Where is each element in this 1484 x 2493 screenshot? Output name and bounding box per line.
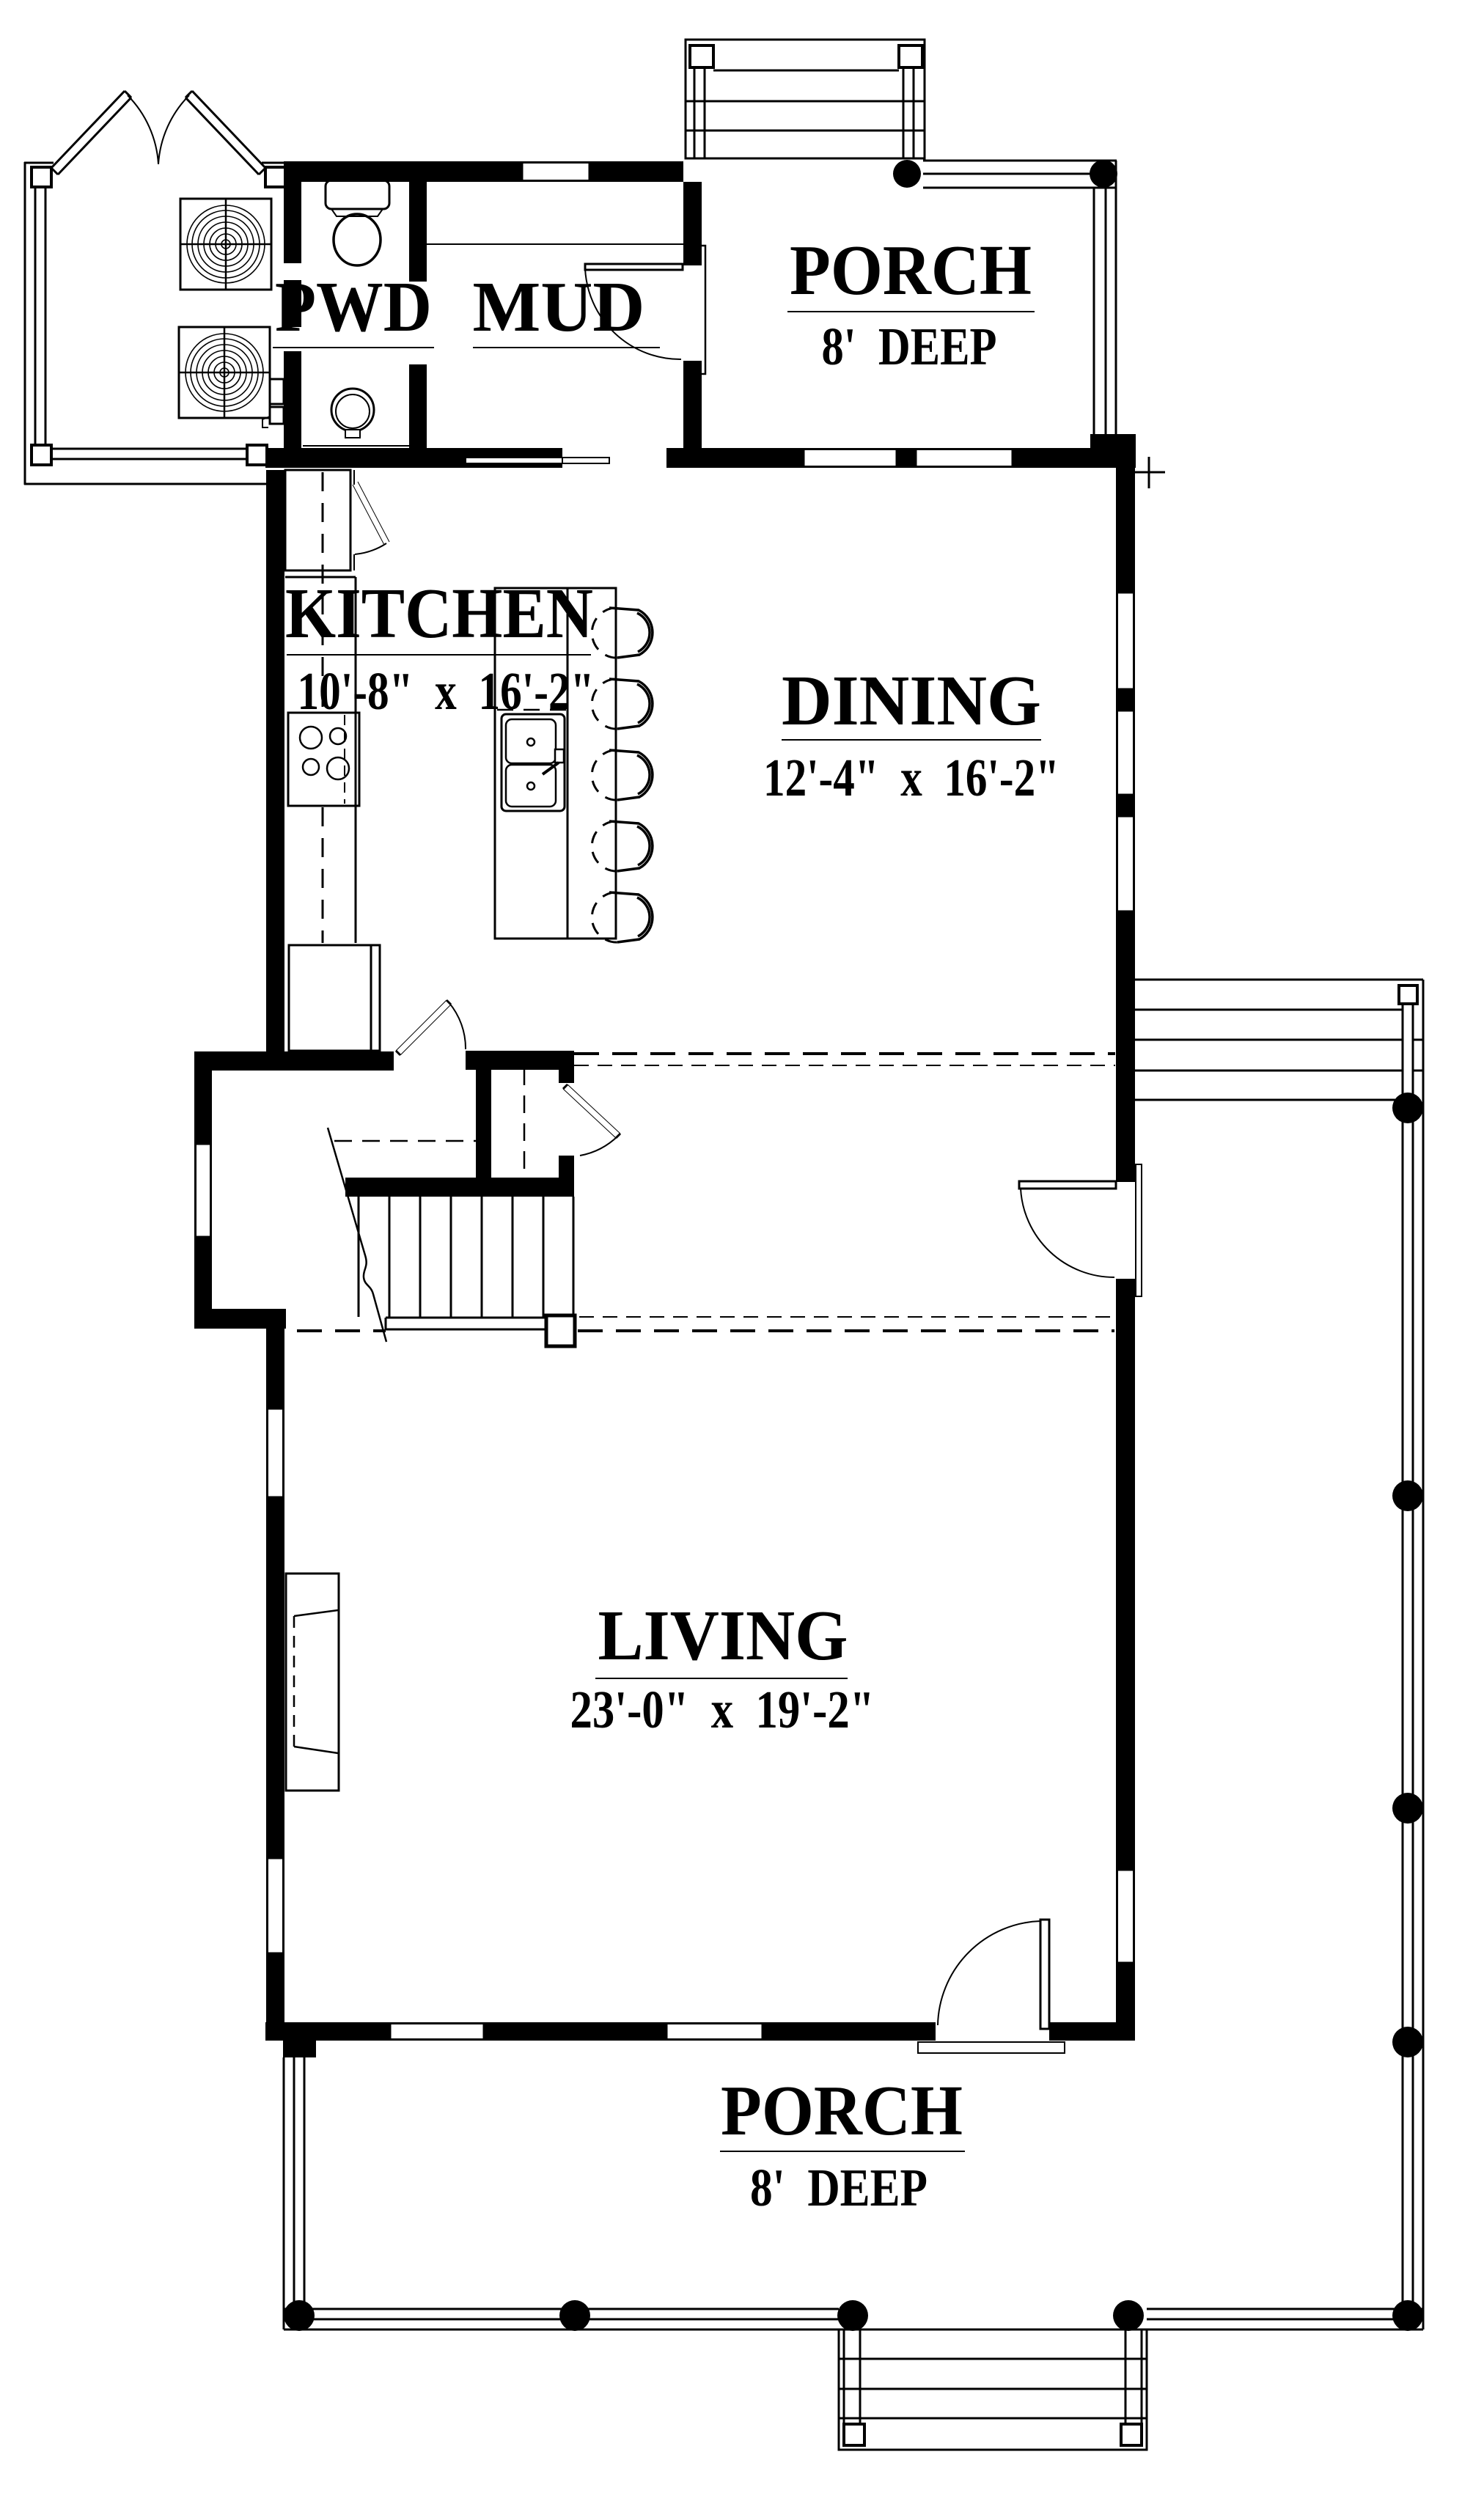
svg-text:10'-8" x 16'-2": 10'-8" x 16'-2" bbox=[298, 661, 595, 721]
svg-text:PWD: PWD bbox=[275, 268, 432, 347]
svg-text:12'-4" x 16'-2": 12'-4" x 16'-2" bbox=[763, 748, 1059, 807]
svg-text:23'-0" x 19'-2": 23'-0" x 19'-2" bbox=[570, 1680, 875, 1739]
svg-text:PORCH: PORCH bbox=[721, 2071, 963, 2151]
svg-text:DINING: DINING bbox=[782, 661, 1041, 741]
svg-text:PORCH: PORCH bbox=[790, 231, 1032, 310]
svg-text:KITCHEN: KITCHEN bbox=[285, 574, 593, 653]
svg-text:8' DEEP: 8' DEEP bbox=[750, 2158, 927, 2217]
svg-text:8' DEEP: 8' DEEP bbox=[822, 317, 997, 376]
svg-text:LIVING: LIVING bbox=[598, 1596, 848, 1675]
svg-text:MUD: MUD bbox=[473, 268, 645, 347]
